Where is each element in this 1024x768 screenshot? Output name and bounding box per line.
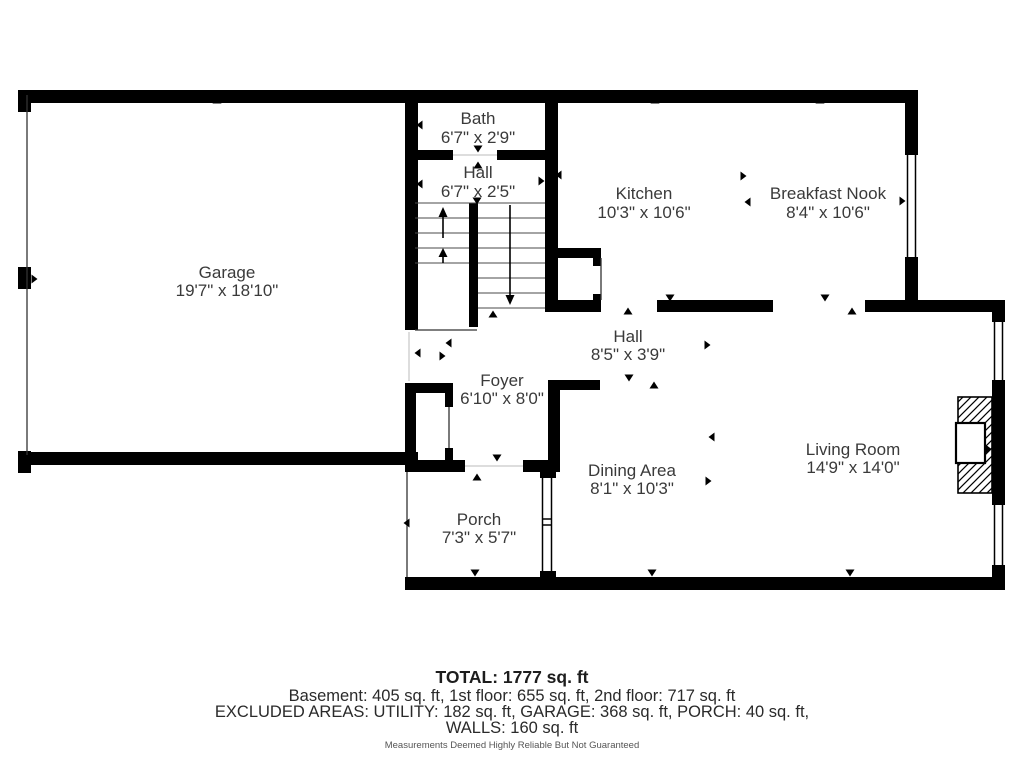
- room-name: Hall: [613, 327, 642, 346]
- floor-plan-page: Garage 19'7" x 18'10" Bath 6'7" x 2'9" H…: [0, 0, 1024, 768]
- stairs-down-arrow-icon: [506, 205, 515, 305]
- room-label-porch: Porch 7'3" x 5'7": [442, 510, 516, 547]
- room-dims: 14'9" x 14'0": [806, 458, 899, 477]
- living-room-window-lower: [995, 505, 1003, 565]
- dimension-ticks: [32, 97, 992, 577]
- room-name: Porch: [457, 510, 501, 529]
- room-dims: 8'5" x 3'9": [591, 345, 665, 364]
- porch-window: [540, 472, 556, 577]
- stairs-up-arrow-icon: [439, 207, 448, 263]
- room-dims: 8'4" x 10'6": [786, 203, 870, 222]
- room-name: Bath: [461, 109, 496, 128]
- floor-plan-drawing: Garage 19'7" x 18'10" Bath 6'7" x 2'9" H…: [0, 0, 1024, 768]
- staircase: [415, 203, 545, 330]
- room-label-kitchen: Kitchen 10'3" x 10'6": [597, 184, 690, 222]
- room-name: Living Room: [806, 440, 901, 459]
- summary-disclaimer: Measurements Deemed Highly Reliable But …: [385, 740, 640, 751]
- room-dims: 6'7" x 2'9": [441, 128, 515, 147]
- room-dims: 6'10" x 8'0": [460, 389, 544, 408]
- room-label-living: Living Room 14'9" x 14'0": [806, 440, 901, 477]
- room-dims: 7'3" x 5'7": [442, 528, 516, 547]
- room-label-breakfast-nook: Breakfast Nook 8'4" x 10'6": [770, 184, 887, 222]
- summary-walls: WALLS: 160 sq. ft: [446, 719, 579, 737]
- room-dims: 6'7" x 2'5": [441, 182, 515, 201]
- room-name: Dining Area: [588, 461, 676, 480]
- room-dims: 8'1" x 10'3": [590, 479, 674, 498]
- fireplace-icon: [956, 397, 992, 493]
- thin-wall-lines: [27, 95, 601, 577]
- room-label-hall-main: Hall 8'5" x 3'9": [591, 327, 665, 364]
- room-name: Kitchen: [616, 184, 673, 203]
- room-name: Foyer: [480, 371, 524, 390]
- room-label-bath: Bath 6'7" x 2'9": [441, 109, 515, 147]
- room-label-garage: Garage 19'7" x 18'10": [176, 263, 279, 300]
- area-summary: TOTAL: 1777 sq. ft Basement: 405 sq. ft,…: [215, 667, 809, 751]
- room-label-dining: Dining Area 8'1" x 10'3": [588, 461, 676, 498]
- room-name: Breakfast Nook: [770, 184, 887, 203]
- breakfast-nook-window: [908, 155, 916, 257]
- living-room-window-upper: [995, 322, 1003, 380]
- summary-total: TOTAL: 1777 sq. ft: [436, 667, 589, 687]
- room-name: Garage: [199, 263, 256, 282]
- room-dims: 19'7" x 18'10": [176, 281, 279, 300]
- walls: [18, 90, 1005, 590]
- room-label-foyer: Foyer 6'10" x 8'0": [460, 371, 544, 408]
- room-label-hall-upper: Hall 6'7" x 2'5": [441, 163, 515, 201]
- room-name: Hall: [463, 163, 492, 182]
- room-labels: Garage 19'7" x 18'10" Bath 6'7" x 2'9" H…: [176, 109, 901, 547]
- room-dims: 10'3" x 10'6": [597, 203, 690, 222]
